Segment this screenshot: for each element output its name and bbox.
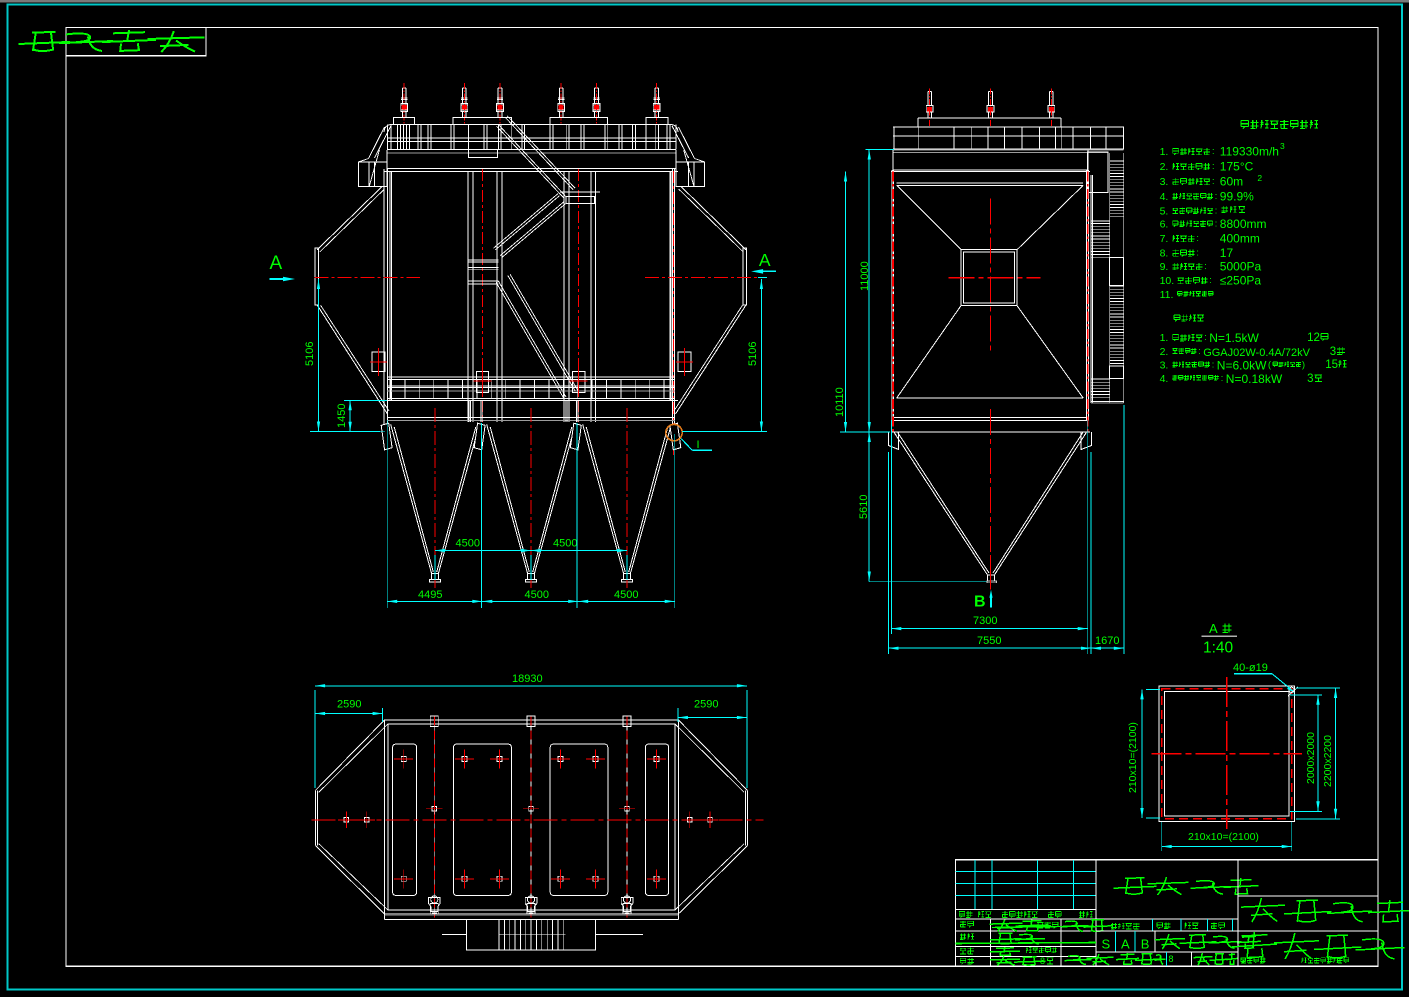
svg-text:3: 3 (1307, 373, 1313, 385)
svg-text:N=6.0kW: N=6.0kW (1217, 359, 1267, 373)
svg-text:2000x2000: 2000x2000 (1305, 732, 1317, 784)
svg-text:400mm: 400mm (1220, 232, 1260, 246)
svg-text:B: B (974, 594, 986, 611)
svg-text:12: 12 (1307, 332, 1320, 344)
svg-text::: : (1221, 373, 1224, 383)
svg-text:I: I (697, 439, 700, 451)
svg-text:1:40: 1:40 (1203, 640, 1234, 657)
svg-text:3.: 3. (1160, 359, 1169, 371)
svg-text:2: 2 (1257, 173, 1262, 183)
svg-text:8: 8 (1169, 954, 1174, 964)
svg-text::: : (1204, 261, 1207, 271)
svg-text:210x10=(2100): 210x10=(2100) (1127, 722, 1139, 793)
svg-text:3.: 3. (1160, 176, 1169, 188)
svg-text::: : (1212, 359, 1215, 369)
svg-text:210x10=(2100): 210x10=(2100) (1188, 831, 1259, 843)
svg-text:1.: 1. (1160, 332, 1169, 344)
svg-text:A: A (270, 253, 283, 274)
svg-text:10.: 10. (1160, 275, 1175, 287)
svg-text::: : (1198, 346, 1201, 356)
svg-text:4500: 4500 (614, 589, 638, 601)
svg-text:≤250Pa: ≤250Pa (1220, 274, 1262, 288)
svg-text:60m: 60m (1220, 175, 1243, 189)
svg-text:2.: 2. (1160, 161, 1169, 173)
svg-text::: : (1196, 233, 1199, 243)
svg-text:5106: 5106 (747, 342, 759, 366)
svg-text:5106: 5106 (304, 342, 316, 366)
svg-text:18930: 18930 (512, 673, 543, 685)
svg-text:A: A (759, 250, 771, 270)
svg-text:N=0.18kW: N=0.18kW (1226, 372, 1283, 386)
svg-text:9.: 9. (1160, 261, 1169, 273)
svg-text::: : (1212, 176, 1215, 186)
svg-text:5610: 5610 (858, 495, 870, 519)
svg-text:2200x2200: 2200x2200 (1322, 735, 1334, 787)
svg-text::: : (1215, 206, 1218, 216)
svg-text:4500: 4500 (525, 589, 549, 601)
svg-text:): ) (1302, 360, 1305, 370)
svg-text::: : (1209, 275, 1212, 285)
svg-text:175°C: 175°C (1220, 160, 1254, 174)
svg-text:A: A (1209, 621, 1218, 636)
svg-text:(: ( (1268, 360, 1271, 370)
svg-text:2590: 2590 (337, 699, 361, 711)
svg-text:1.: 1. (1160, 146, 1169, 158)
svg-text:8800mm: 8800mm (1220, 217, 1267, 231)
svg-text:GGAJ02W-0.4A/72kV: GGAJ02W-0.4A/72kV (1203, 347, 1310, 359)
svg-text:7300: 7300 (973, 615, 997, 627)
svg-text:40-ø19: 40-ø19 (1233, 662, 1268, 674)
svg-text:4500: 4500 (553, 538, 577, 550)
svg-text:2590: 2590 (694, 699, 718, 711)
svg-text:N=1.5kW: N=1.5kW (1209, 331, 1259, 345)
svg-text:8.: 8. (1160, 248, 1169, 260)
svg-text:B: B (1141, 937, 1150, 952)
svg-text:15: 15 (1325, 359, 1338, 371)
svg-text:4.: 4. (1160, 373, 1169, 385)
svg-text:7.: 7. (1160, 233, 1169, 245)
svg-text::: : (1212, 146, 1215, 156)
svg-text::: : (1215, 219, 1218, 229)
svg-text::: : (1204, 332, 1207, 342)
svg-text::: : (1212, 161, 1215, 171)
svg-text:A: A (1121, 937, 1130, 952)
svg-text:8: 8 (1040, 956, 1045, 966)
svg-text:11.: 11. (1160, 289, 1174, 301)
svg-text:99.9%: 99.9% (1220, 190, 1254, 204)
svg-text:6.: 6. (1160, 219, 1169, 231)
svg-text:5000Pa: 5000Pa (1220, 260, 1262, 274)
svg-text:5.: 5. (1160, 206, 1169, 218)
svg-text:119330m/h: 119330m/h (1220, 145, 1279, 159)
svg-text:7550: 7550 (977, 635, 1001, 647)
svg-text:4500: 4500 (456, 538, 480, 550)
svg-text:1450: 1450 (336, 404, 348, 428)
svg-text::: : (1215, 191, 1218, 201)
svg-text:4.: 4. (1160, 191, 1169, 203)
svg-text:2.: 2. (1160, 346, 1169, 358)
svg-text:10110: 10110 (834, 387, 846, 417)
svg-text:3: 3 (1330, 346, 1336, 358)
svg-text:3: 3 (1280, 141, 1285, 151)
svg-text:4495: 4495 (418, 589, 442, 601)
svg-text:S: S (1102, 937, 1111, 952)
svg-text:11000: 11000 (859, 261, 871, 291)
svg-text:1670: 1670 (1095, 635, 1119, 647)
svg-text::: : (1196, 248, 1199, 258)
svg-text:17: 17 (1220, 246, 1234, 260)
